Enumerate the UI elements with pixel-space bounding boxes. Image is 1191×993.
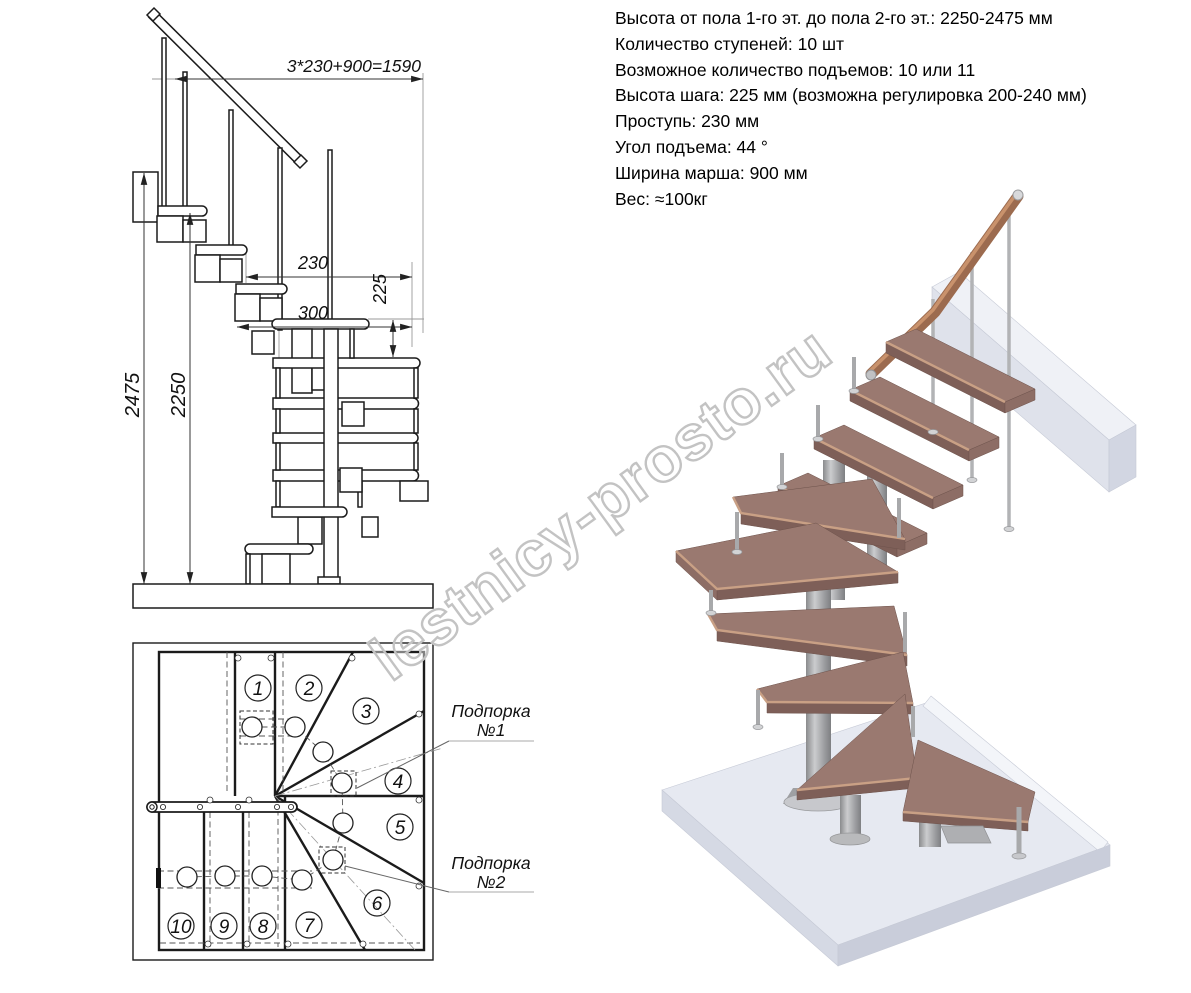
spec-line-flight-width: Ширина марша: 900 мм: [615, 161, 1087, 187]
floor-slab: [133, 584, 433, 608]
central-post: [324, 329, 338, 584]
dim-depth-label: 300: [298, 303, 328, 323]
wall-bracket: [133, 172, 158, 222]
dim-riser-label: 225: [370, 273, 390, 305]
staircase-3d-render: [600, 150, 1191, 993]
side-elevation-drawing: 3*230+900=1590 230 300 225 2475 2250: [0, 0, 500, 630]
spec-line-step-height: Высота шага: 225 мм (возможна регулировк…: [615, 83, 1087, 109]
step-number: 10: [170, 917, 192, 938]
support-labels: Подпорка №1 Подпорка №2: [451, 701, 530, 892]
support1-number: №1: [477, 720, 506, 740]
tread-3: [757, 652, 913, 714]
step-number: 8: [258, 917, 269, 938]
plan-view-drawing: 1 2 3 4 5 6 7 8 9 10 Подпорка №1 Подпорк…: [0, 630, 560, 993]
dim-total-label: 3*230+900=1590: [287, 56, 422, 76]
step-number: 6: [372, 894, 383, 915]
support1-label: Подпорка: [451, 701, 530, 721]
plan-handrail: [147, 802, 297, 812]
spec-line-tread-depth: Проступь: 230 мм: [615, 109, 1087, 135]
dim-tread-label: 230: [297, 253, 328, 273]
step-number: 1: [253, 679, 264, 700]
upper-flight-modules: [157, 206, 287, 354]
spec-line-angle: Угол подъема: 44 °: [615, 135, 1087, 161]
step-number: 5: [395, 818, 406, 839]
handrail: [149, 11, 302, 163]
support2-label: Подпорка: [451, 853, 530, 873]
spec-line-weight: Вес: ≈100кг: [615, 187, 1087, 213]
plan-sight-lines: [275, 748, 443, 950]
dim-height-max-label: 2475: [122, 372, 144, 418]
dim-height-min-label: 2250: [168, 373, 190, 419]
spec-line-step-count: Количество ступеней: 10 шт: [615, 32, 1087, 58]
support2-number: №2: [477, 872, 506, 892]
step-number: 4: [393, 772, 404, 793]
wall-anchor: [156, 868, 161, 888]
specifications-block: Высота от пола 1-го эт. до пола 2-го эт.…: [615, 6, 1087, 212]
step-number: 3: [361, 702, 372, 723]
step-number: 2: [303, 679, 315, 700]
step-number: 9: [219, 917, 230, 938]
step-number: 7: [304, 916, 316, 937]
staircase-structure: [133, 8, 433, 608]
spec-line-height-total: Высота от пола 1-го эт. до пола 2-го эт.…: [615, 6, 1087, 32]
spec-line-rise-count: Возможное количество подъемов: 10 или 11: [615, 58, 1087, 84]
